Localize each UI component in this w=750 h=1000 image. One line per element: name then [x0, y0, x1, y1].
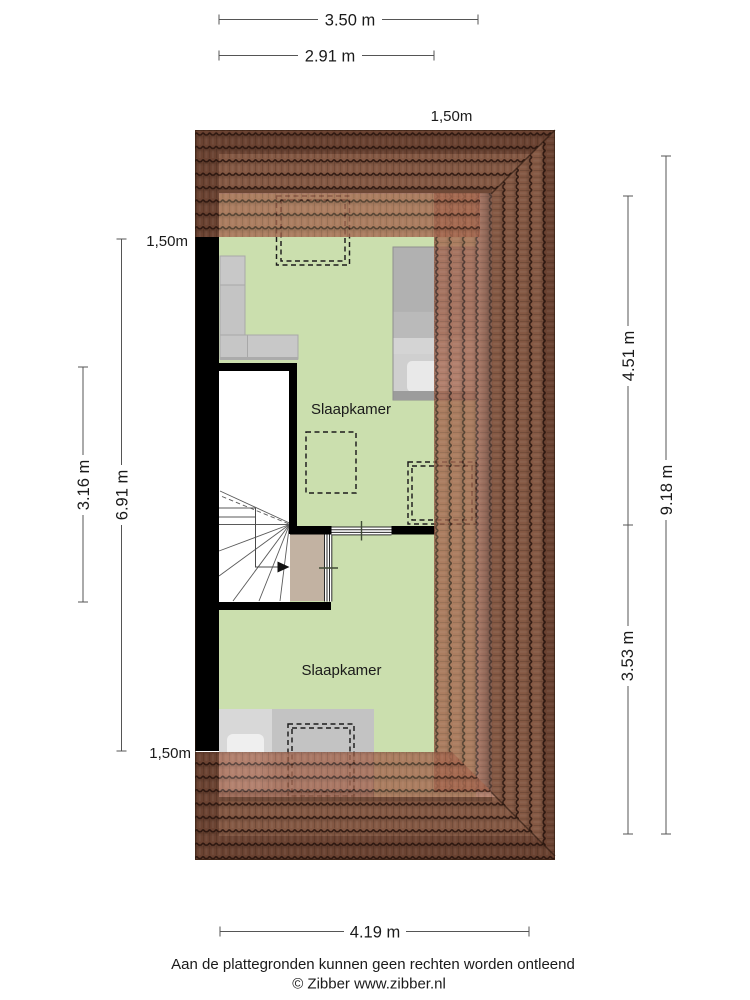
- svg-text:2.91 m: 2.91 m: [305, 47, 355, 65]
- svg-text:1,50m: 1,50m: [149, 745, 191, 762]
- svg-text:3.50 m: 3.50 m: [325, 11, 375, 29]
- svg-text:4.19 m: 4.19 m: [350, 923, 400, 941]
- svg-text:© Zibber www.zibber.nl: © Zibber www.zibber.nl: [292, 976, 446, 993]
- svg-text:4.51 m: 4.51 m: [620, 331, 638, 381]
- svg-text:Aan de plattegronden kunnen ge: Aan de plattegronden kunnen geen rechten…: [171, 956, 575, 973]
- svg-text:9.18 m: 9.18 m: [658, 465, 676, 515]
- svg-text:1,50m: 1,50m: [146, 233, 188, 250]
- svg-text:3.16 m: 3.16 m: [75, 460, 93, 510]
- svg-text:3.53 m: 3.53 m: [619, 631, 637, 681]
- svg-text:Slaapkamer: Slaapkamer: [311, 401, 391, 418]
- svg-text:1,50m: 1,50m: [431, 108, 473, 125]
- svg-text:Slaapkamer: Slaapkamer: [301, 662, 381, 679]
- svg-text:6.91 m: 6.91 m: [114, 470, 132, 520]
